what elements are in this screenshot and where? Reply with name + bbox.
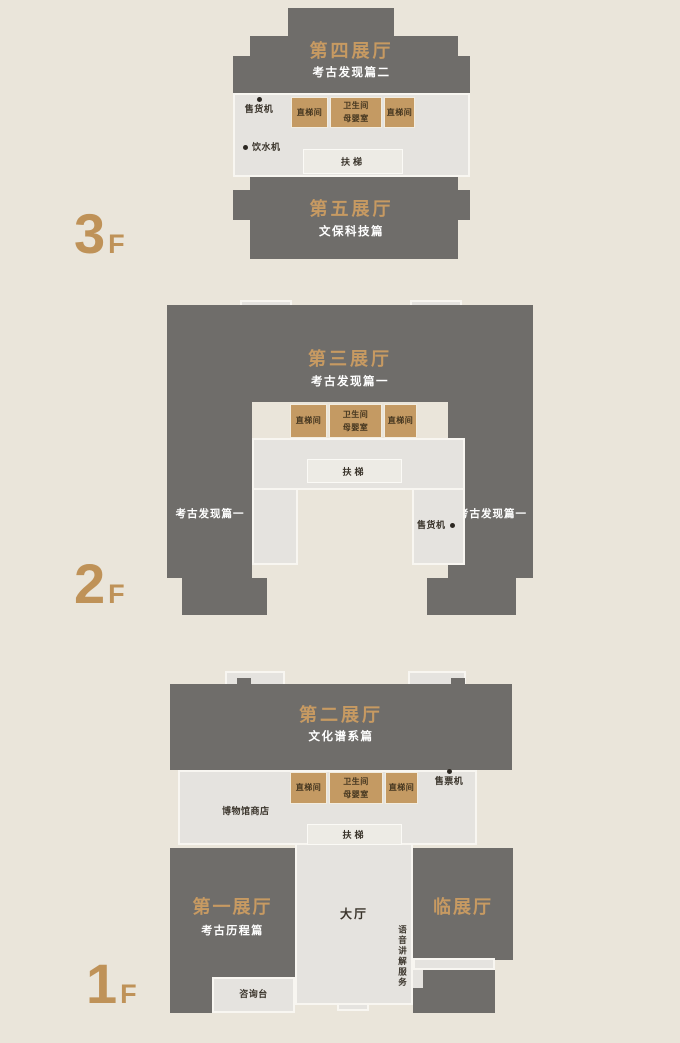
escalator-label: 扶梯	[342, 465, 366, 478]
floor2-right-wing-bottom	[427, 578, 516, 615]
elevator-room-label: 直梯间	[296, 417, 322, 425]
escalator-box: 扶梯	[307, 459, 402, 483]
floor1-right-passage	[413, 958, 495, 970]
escalator-label: 扶梯	[341, 155, 365, 168]
floor-number: 3	[74, 206, 105, 262]
elevator-room-box: 直梯间	[384, 97, 415, 128]
escalator-label: 扶梯	[342, 828, 366, 841]
vending-machine-label: 售货机	[417, 521, 446, 530]
hall4-title: 第四展厅	[233, 42, 470, 60]
elevator-room-label: 直梯间	[296, 784, 322, 792]
water-dispenser-dot-icon	[243, 145, 248, 150]
floor-suffix: F	[120, 981, 137, 1008]
hall5-title: 第五展厅	[233, 200, 470, 218]
information-desk-label: 咨询台	[212, 990, 295, 999]
hall4-subtitle: 考古发现篇二	[233, 68, 470, 80]
floor-suffix: F	[108, 231, 125, 258]
audio-guide-label: 语音讲解服务	[398, 925, 407, 995]
vending-machine-dot-icon	[450, 523, 455, 528]
vending-machine-label: 售货机	[245, 105, 274, 114]
hall1-block-lower-left	[170, 977, 212, 1013]
hall1-title: 第一展厅	[170, 898, 295, 916]
hall5-subtitle: 文保科技篇	[233, 227, 470, 239]
elevator-room-box: 直梯间	[385, 772, 418, 804]
nursery-label: 母婴室	[343, 791, 369, 799]
restroom-label: 卫生间	[343, 102, 369, 110]
floor-number: 1	[86, 956, 117, 1012]
elevator-room-label: 直梯间	[297, 109, 323, 117]
hall3-title: 第三展厅	[167, 350, 533, 368]
restroom-nursery-box: 卫生间 母婴室	[329, 772, 383, 804]
vending-machine-dot-icon	[257, 97, 262, 102]
escalator-box: 扶梯	[307, 824, 402, 845]
elevator-room-box: 直梯间	[291, 97, 328, 128]
floor-label-2f: 2 F	[74, 556, 125, 612]
hall2-subtitle: 文化谱系篇	[170, 732, 512, 744]
water-dispenser-marker: 饮水机	[243, 143, 281, 152]
museum-shop-label: 博物馆商店	[222, 807, 270, 816]
hall2-block	[170, 684, 512, 770]
restroom-label: 卫生间	[343, 778, 369, 786]
hall3-subtitle: 考古发现篇一	[167, 377, 533, 389]
water-dispenser-label: 饮水机	[252, 143, 281, 152]
ticket-machine-label: 售票机	[435, 777, 464, 786]
elevator-room-label: 直梯间	[387, 109, 413, 117]
lobby-bottom-tab	[337, 1003, 369, 1011]
nursery-label: 母婴室	[343, 115, 369, 123]
floor-suffix: F	[108, 581, 125, 608]
ticket-machine-dot-icon	[447, 769, 452, 774]
museum-floor-map: 第四展厅 考古发现篇二 直梯间 卫生间 母婴室 直梯间 售货机 饮水机 扶梯	[0, 0, 680, 1043]
elevator-room-box: 直梯间	[384, 404, 417, 438]
elevator-room-box: 直梯间	[290, 404, 327, 438]
restroom-label: 卫生间	[343, 411, 369, 419]
floor1-right-lower-block	[413, 970, 495, 1013]
temporary-hall-title: 临展厅	[413, 898, 513, 916]
left-wing-label: 考古发现篇一	[167, 509, 253, 520]
floor2-left-wing-bottom	[182, 578, 267, 615]
hall1-subtitle: 考古历程篇	[170, 926, 295, 937]
nursery-label: 母婴室	[343, 424, 369, 432]
elevator-room-box: 直梯间	[290, 772, 327, 804]
floor-label-3f: 3 F	[74, 206, 125, 262]
floor2-left-wing	[167, 402, 252, 578]
floor-number: 2	[74, 556, 105, 612]
floor-label-1f: 1 F	[86, 956, 137, 1012]
elevator-room-label: 直梯间	[389, 784, 415, 792]
escalator-box: 扶梯	[303, 149, 403, 174]
floor2-corridor-left-leg	[252, 488, 298, 565]
hall5-block-top	[250, 177, 458, 191]
elevator-room-label: 直梯间	[388, 417, 414, 425]
restroom-nursery-box: 卫生间 母婴室	[329, 404, 382, 438]
floor1-right-lower-notch	[413, 970, 423, 988]
vending-machine-marker: 售货机	[238, 97, 280, 114]
ticket-machine-marker: 售票机	[428, 769, 470, 786]
hall2-title: 第二展厅	[170, 706, 512, 724]
lobby-area	[295, 843, 413, 1005]
lobby-label: 大厅	[295, 908, 413, 920]
vending-machine-marker: 售货机	[417, 521, 455, 530]
restroom-nursery-box: 卫生间 母婴室	[330, 97, 382, 128]
